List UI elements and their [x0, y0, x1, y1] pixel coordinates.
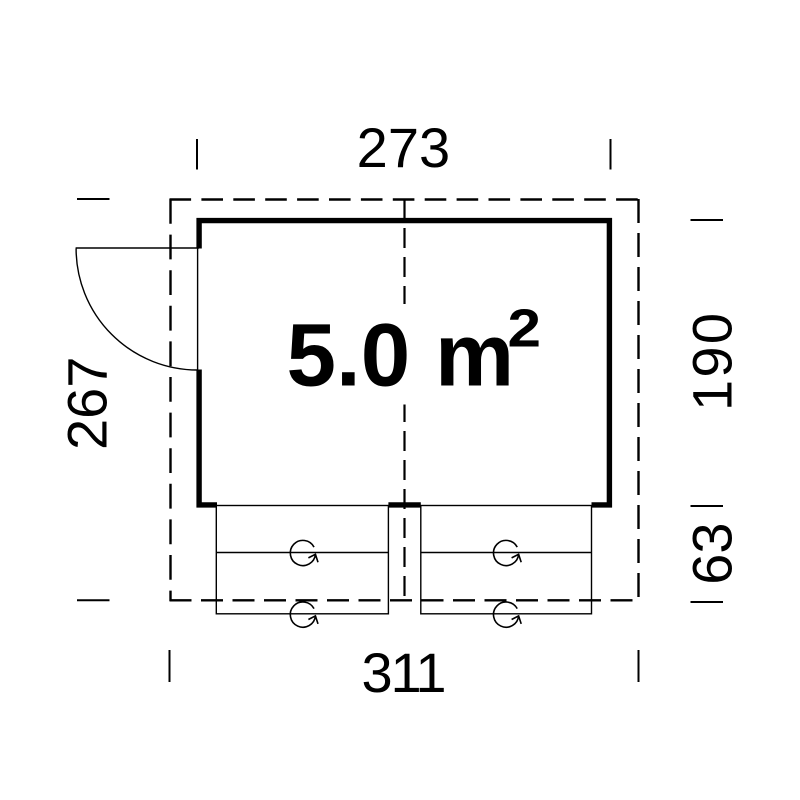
svg-text:273: 273	[357, 116, 450, 179]
svg-text:63: 63	[681, 522, 744, 584]
svg-text:267: 267	[56, 357, 119, 450]
svg-text:5.0 m: 5.0 m	[287, 305, 515, 405]
svg-text:311: 311	[362, 641, 447, 704]
svg-text:2: 2	[508, 299, 542, 359]
svg-text:190: 190	[681, 313, 744, 411]
